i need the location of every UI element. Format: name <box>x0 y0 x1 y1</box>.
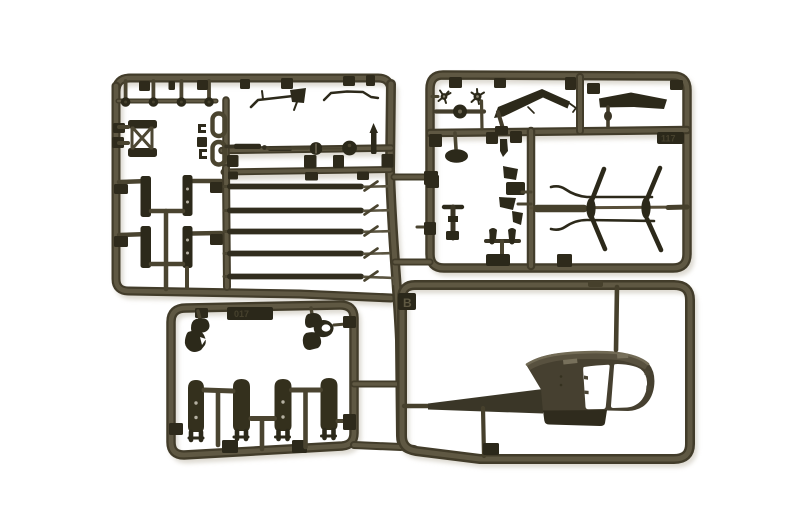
svg-text:B: B <box>403 296 412 310</box>
svg-text:017: 017 <box>234 309 249 319</box>
svg-text:117: 117 <box>661 134 676 144</box>
